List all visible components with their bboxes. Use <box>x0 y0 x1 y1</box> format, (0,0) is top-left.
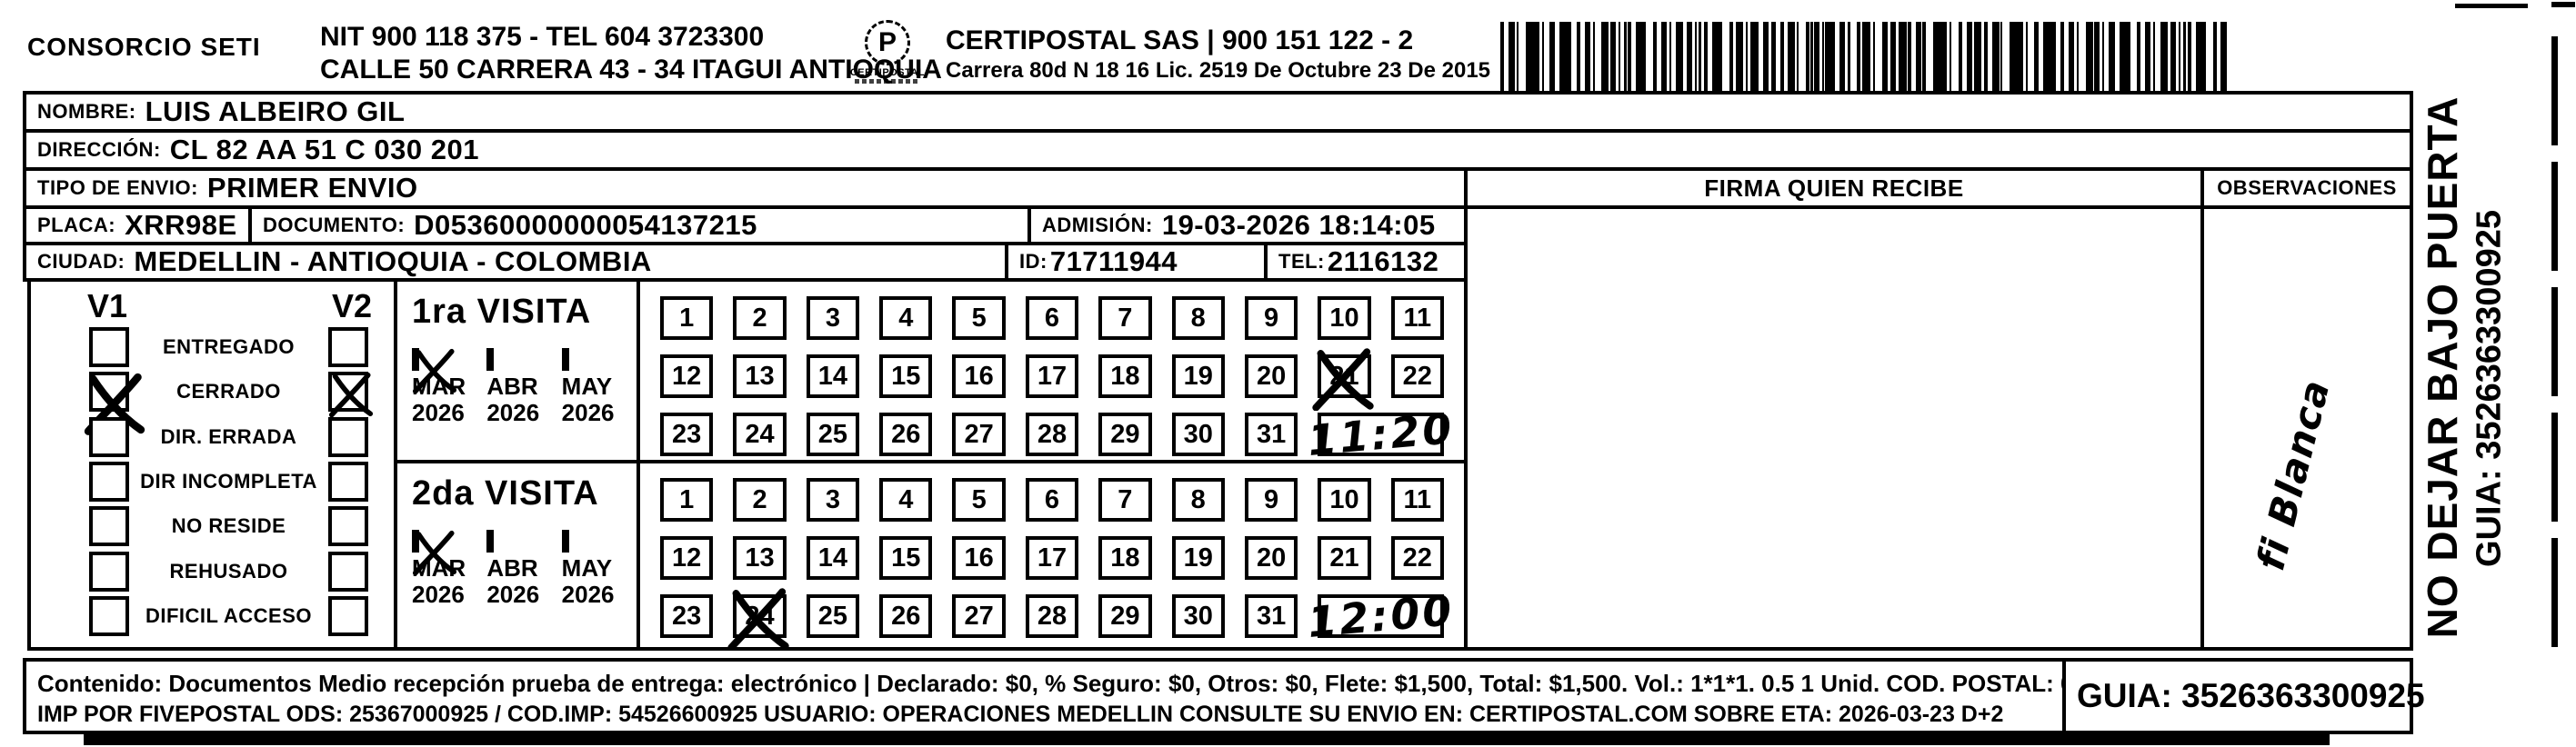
day-cell-3: 3 <box>807 478 859 522</box>
ciudad-value: MEDELLIN - ANTIOQUIA - COLOMBIA <box>134 245 651 278</box>
id-label: ID: <box>1019 250 1047 274</box>
v1-checkbox <box>89 417 129 457</box>
nombre-row: NOMBRE: LUIS ALBEIRO GIL <box>23 91 2413 133</box>
status-row-cerrado: CERRADO <box>31 372 394 412</box>
month-year: 2026 <box>412 400 472 426</box>
day-cell-16: 16 <box>952 354 1005 398</box>
day-cell-1: 1 <box>660 478 713 522</box>
firma-header-cell: FIRMA QUIEN RECIBE <box>1464 167 2204 209</box>
company-name: CONSORCIO SETI <box>27 33 261 62</box>
side-note-no-dejar: NO DEJAR BAJO PUERTA <box>2418 95 2467 640</box>
month-option-may: MAY2026 <box>562 352 622 425</box>
month-year: 2026 <box>562 582 622 608</box>
nombre-label: NOMBRE: <box>37 100 136 124</box>
day-cell-20: 20 <box>1245 536 1298 580</box>
day-cell-25: 25 <box>807 594 859 638</box>
documento-label: DOCUMENTO: <box>263 214 405 237</box>
month-label: MAY <box>562 555 622 582</box>
month-label: MAY <box>562 373 622 400</box>
scan-bottom-edge <box>84 731 2330 745</box>
status-row-dificil-acceso: DIFICIL ACCESO <box>31 596 394 636</box>
day-cell-13: 13 <box>733 354 786 398</box>
side-note-guia: GUIA: 3526363300925 <box>2471 175 2510 603</box>
day-cell-30: 30 <box>1172 594 1225 638</box>
v1-checkbox <box>89 596 129 636</box>
company-nit-line: NIT 900 118 375 - TEL 604 3723300 <box>320 22 764 53</box>
v1-checkbox <box>89 552 129 592</box>
day-cell-29: 29 <box>1098 413 1151 456</box>
handwritten-x-mark <box>412 348 457 393</box>
month-option-may: MAY2026 <box>562 533 622 607</box>
month-label: ABR <box>486 373 546 400</box>
day-cell-20: 20 <box>1245 354 1298 398</box>
day-cell-31: 31 <box>1245 413 1298 456</box>
day-cell-28: 28 <box>1026 413 1078 456</box>
ciudad-cell: CIUDAD: MEDELLIN - ANTIOQUIA - COLOMBIA <box>23 242 1008 282</box>
day-cell-14: 14 <box>807 354 859 398</box>
month-checkbox <box>486 530 494 553</box>
tel-value: 2116132 <box>1328 245 1438 278</box>
status-rows: ENTREGADOCERRADODIR. ERRADADIR INCOMPLET… <box>31 327 394 636</box>
day-cell-4: 4 <box>879 296 932 340</box>
tel-label: TEL: <box>1278 250 1325 274</box>
admision-label: ADMISIÓN: <box>1042 214 1153 237</box>
v2-checkbox <box>328 506 368 546</box>
handwritten-x-mark <box>328 372 374 417</box>
v1-checkbox <box>89 462 129 502</box>
v1-checkbox <box>89 372 129 412</box>
day-cell-18: 18 <box>1098 354 1151 398</box>
tipo-envio-value: PRIMER ENVIO <box>207 172 418 204</box>
guia-box: GUIA: 3526363300925 <box>2062 658 2413 734</box>
day-cell-11: 11 <box>1391 296 1444 340</box>
observaciones-header-cell: OBSERVACIONES <box>2200 167 2413 209</box>
visit2-day-grid: 1234567891011121314151617181920212223242… <box>636 460 1468 651</box>
day-cell-2: 2 <box>733 296 786 340</box>
month-option-mar: MAR2026 <box>412 352 472 425</box>
month-year: 2026 <box>486 582 546 608</box>
v1-checkbox <box>89 506 129 546</box>
imp-line: IMP POR FIVEPOSTAL ODS: 25367000925 / CO… <box>37 700 2051 730</box>
day-cell-10: 10 <box>1318 296 1370 340</box>
day-cell-9: 9 <box>1245 478 1298 522</box>
footer-content-box: Contenido: Documentos Medio recepción pr… <box>23 658 2066 734</box>
id-cell: ID: 71711944 <box>1005 242 1268 282</box>
day-cell-17: 17 <box>1026 536 1078 580</box>
day-cell-24: 24 <box>733 594 786 638</box>
direccion-value: CL 82 AA 51 C 030 201 <box>170 134 479 166</box>
documento-value: D05360000000054137215 <box>414 209 757 242</box>
scan-right-edge <box>2551 36 2558 654</box>
day-cell-27: 27 <box>952 413 1005 456</box>
status-row-entregado: ENTREGADO <box>31 327 394 367</box>
visit1-months: MAR2026ABR2026MAY2026 <box>412 352 622 425</box>
firma-header: FIRMA QUIEN RECIBE <box>1704 174 1963 203</box>
status-label: NO RESIDE <box>129 514 328 538</box>
handwritten-x-mark <box>1308 347 1378 411</box>
status-label: DIFICIL ACCESO <box>129 604 328 628</box>
month-option-abr: ABR2026 <box>486 352 546 425</box>
contenido-line: Contenido: Documentos Medio recepción pr… <box>37 669 2051 700</box>
day-cell-5: 5 <box>952 478 1005 522</box>
v1-column-header: V1 <box>87 287 127 325</box>
month-year: 2026 <box>486 400 546 426</box>
day-cell-16: 16 <box>952 536 1005 580</box>
month-year: 2026 <box>562 400 622 426</box>
documento-cell: DOCUMENTO: D05360000000054137215 <box>248 205 1031 245</box>
day-cell-26: 26 <box>879 594 932 638</box>
logo-tagline-blur <box>855 79 920 84</box>
v2-checkbox <box>328 417 368 457</box>
tel-cell: TEL: 2116132 <box>1264 242 1468 282</box>
v2-checkbox <box>328 552 368 592</box>
day-cell-15: 15 <box>879 536 932 580</box>
day-cell-13: 13 <box>733 536 786 580</box>
handwritten-x-mark <box>412 530 457 575</box>
month-checkbox <box>486 348 494 371</box>
nombre-value: LUIS ALBEIRO GIL <box>145 95 406 128</box>
placa-label: PLACA: <box>37 214 115 237</box>
day-cell-15: 15 <box>879 354 932 398</box>
handwritten-time: 12:00 <box>1306 585 1457 647</box>
visit-status-panel: V1 V2 ENTREGADOCERRADODIR. ERRADADIR INC… <box>27 278 397 651</box>
day-cell-4: 4 <box>879 478 932 522</box>
ciudad-label: CIUDAD: <box>37 250 125 274</box>
day-cell-3: 3 <box>807 296 859 340</box>
visit2-title: 2da VISITA <box>412 474 622 513</box>
day-cell-19: 19 <box>1172 536 1225 580</box>
month-label: ABR <box>486 555 546 582</box>
day-cell-23: 23 <box>660 413 713 456</box>
day-cell-7: 7 <box>1098 296 1151 340</box>
day-cell-14: 14 <box>807 536 859 580</box>
day-cell-2: 2 <box>733 478 786 522</box>
status-row-dir-incompleta: DIR INCOMPLETA <box>31 462 394 502</box>
guia-number: GUIA: 3526363300925 <box>2077 677 2425 715</box>
tipo-envio-row: TIPO DE ENVIO: PRIMER ENVIO <box>23 167 1468 209</box>
v2-column-header: V2 <box>332 287 372 325</box>
day-cell-9: 9 <box>1245 296 1298 340</box>
scan-top-dash <box>2455 4 2528 8</box>
visit1-month-panel: 1ra VISITA MAR2026ABR2026MAY2026 <box>394 278 640 463</box>
day-cell-1: 1 <box>660 296 713 340</box>
day-cell-18: 18 <box>1098 536 1151 580</box>
month-checkbox <box>412 348 419 371</box>
day-cell-25: 25 <box>807 413 859 456</box>
day-cell-26: 26 <box>879 413 932 456</box>
certipostal-stamp-icon: P <box>865 20 910 65</box>
certipostal-company-line: CERTIPOSTAL SAS | 900 151 122 - 2 <box>946 25 1413 56</box>
day-cell-5: 5 <box>952 296 1005 340</box>
visit1-day-grid: 1234567891011121314151617181920212223242… <box>636 278 1468 463</box>
handwritten-time-box: 12:00 <box>1318 594 1444 638</box>
day-cell-28: 28 <box>1026 594 1078 638</box>
placa-value: XRR98E <box>125 209 237 242</box>
placa-cell: PLACA: XRR98E <box>23 205 252 245</box>
visit2-month-panel: 2da VISITA MAR2026ABR2026MAY2026 <box>394 460 640 651</box>
day-cell-10: 10 <box>1318 478 1370 522</box>
shipment-barcode <box>1500 22 2228 93</box>
direccion-label: DIRECCIÓN: <box>37 138 161 162</box>
day-cell-19: 19 <box>1172 354 1225 398</box>
day-cell-17: 17 <box>1026 354 1078 398</box>
status-row-rehusado: REHUSADO <box>31 552 394 592</box>
day-cell-12: 12 <box>660 536 713 580</box>
day-cell-8: 8 <box>1172 296 1225 340</box>
day-cell-31: 31 <box>1245 594 1298 638</box>
day-cell-22: 22 <box>1391 536 1444 580</box>
day-cell-6: 6 <box>1026 478 1078 522</box>
v2-checkbox <box>328 327 368 367</box>
status-row-no-reside: NO RESIDE <box>31 506 394 546</box>
day-cell-8: 8 <box>1172 478 1225 522</box>
day-cell-30: 30 <box>1172 413 1225 456</box>
status-label: REHUSADO <box>129 560 328 583</box>
observaciones-header: OBSERVACIONES <box>2217 176 2397 200</box>
day-cell-11: 11 <box>1391 478 1444 522</box>
status-label: DIR INCOMPLETA <box>129 470 328 493</box>
month-option-abr: ABR2026 <box>486 533 546 607</box>
month-checkbox <box>412 530 419 553</box>
day-cell-6: 6 <box>1026 296 1078 340</box>
month-checkbox <box>562 348 569 371</box>
admision-cell: ADMISIÓN: 19-03-2026 18:14:05 <box>1027 205 1468 245</box>
v2-checkbox <box>328 462 368 502</box>
day-cell-29: 29 <box>1098 594 1151 638</box>
visit1-title: 1ra VISITA <box>412 293 622 332</box>
month-option-mar: MAR2026 <box>412 533 472 607</box>
day-cell-12: 12 <box>660 354 713 398</box>
v1-checkbox <box>89 327 129 367</box>
handwritten-time-box: 11:20 <box>1318 413 1444 456</box>
day-cell-21: 21 <box>1318 536 1370 580</box>
certipostal-license-line: Carrera 80d N 18 16 Lic. 2519 De Octubre… <box>946 58 1490 84</box>
admision-value: 19-03-2026 18:14:05 <box>1162 209 1436 242</box>
direccion-row: DIRECCIÓN: CL 82 AA 51 C 030 201 <box>23 129 2413 171</box>
handwritten-time: 11:20 <box>1306 403 1457 465</box>
status-label: CERRADO <box>129 380 328 403</box>
day-cell-24: 24 <box>733 413 786 456</box>
visit2-months: MAR2026ABR2026MAY2026 <box>412 533 622 607</box>
courier-delivery-form-scan: CONSORCIO SETI NIT 900 118 375 - TEL 604… <box>0 0 2576 747</box>
id-value: 71711944 <box>1050 245 1178 278</box>
status-label: DIR. ERRADA <box>129 425 328 449</box>
scan-corner-dash <box>2551 2 2575 7</box>
v2-checkbox <box>328 596 368 636</box>
status-label: ENTREGADO <box>129 335 328 359</box>
v2-checkbox <box>328 372 368 412</box>
month-checkbox <box>562 530 569 553</box>
day-cell-7: 7 <box>1098 478 1151 522</box>
day-cell-23: 23 <box>660 594 713 638</box>
tipo-envio-label: TIPO DE ENVIO: <box>37 176 198 200</box>
handwritten-x-mark <box>724 587 793 651</box>
day-cell-21: 21 <box>1318 354 1370 398</box>
firma-body-cell <box>1464 205 2204 651</box>
month-year: 2026 <box>412 582 472 608</box>
day-cell-27: 27 <box>952 594 1005 638</box>
certipostal-logo: P CERTIPOSTAL <box>835 20 940 84</box>
certipostal-logo-text: CERTIPOSTAL <box>835 67 940 78</box>
day-cell-22: 22 <box>1391 354 1444 398</box>
